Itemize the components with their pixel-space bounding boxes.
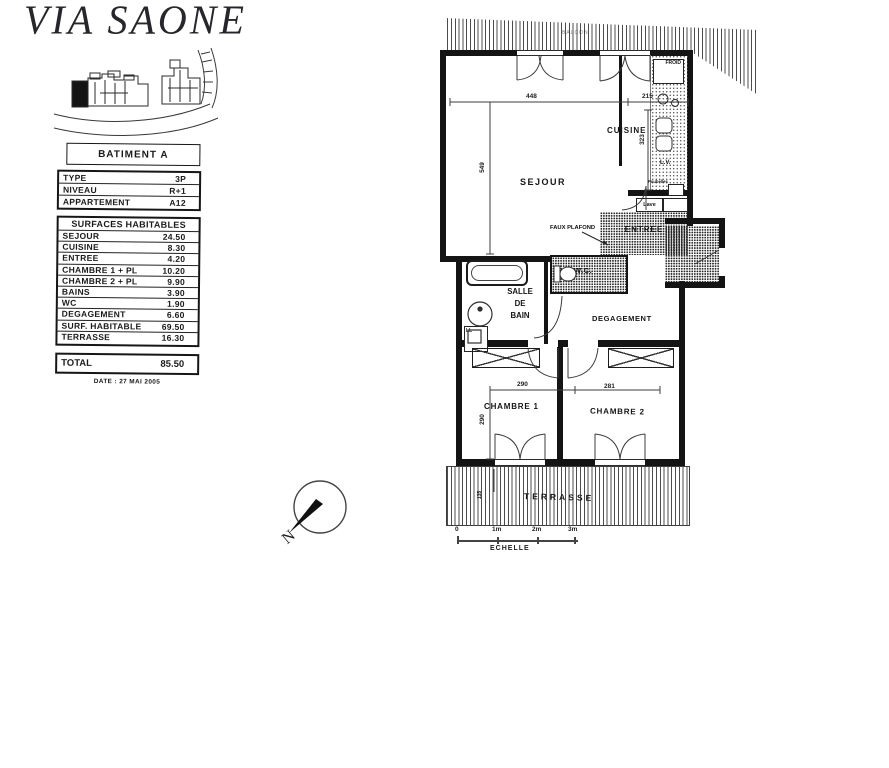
info-label: APPARTEMENT <box>59 197 130 208</box>
bath-fixtures <box>468 302 492 343</box>
door-swings <box>495 56 719 459</box>
north-compass: N <box>280 474 360 554</box>
info-value: A12 <box>169 198 199 208</box>
scale-tick-2m: 2m <box>532 526 541 533</box>
surface-label: CUISINE <box>58 242 99 252</box>
surface-value: 6.60 <box>167 310 198 320</box>
info-value: R+1 <box>169 186 199 196</box>
faux-plafond-arrow <box>582 232 608 245</box>
info-row: APPARTEMENT A12 <box>59 196 199 210</box>
scale-tick-1m: 1m <box>492 526 501 533</box>
total-box: TOTAL 85.50 <box>55 353 199 376</box>
surface-label: TERRASSE <box>57 332 110 343</box>
surface-label: SEJOUR <box>58 231 99 241</box>
surface-value: 24.50 <box>163 232 199 242</box>
surface-label: SURF. HABITABLE <box>58 320 142 331</box>
dimension-lines <box>450 98 688 492</box>
scale-label: ECHELLE <box>490 545 530 552</box>
surface-label: BAINS <box>58 287 90 297</box>
scale-bar <box>458 536 578 544</box>
project-title: VIA SAONE <box>24 0 264 44</box>
surfaces-table: SURFACES HABITABLES SEJOUR 24.50 CUISINE… <box>55 216 200 348</box>
floor-plan: BALCON ENTREE FAUX PLAFOND Lave FROID L.… <box>432 14 750 566</box>
apartment-info-table: TYPE 3P NIVEAU R+1 APPARTEMENT A12 <box>57 170 201 212</box>
north-label: N <box>280 527 299 548</box>
surface-label: CHAMBRE 1 + PL <box>58 264 137 275</box>
site-plan-sketch <box>50 48 230 143</box>
surface-label: CHAMBRE 2 + PL <box>58 275 137 286</box>
surface-row: TERRASSE 16.30 <box>57 331 197 344</box>
scanned-floorplan-page: { "header": { "title": "VIA SAONE" }, "b… <box>0 0 889 768</box>
surface-value: 9.90 <box>167 277 198 287</box>
compass-circle <box>294 481 346 533</box>
surface-value: 8.30 <box>168 243 199 253</box>
surface-label: ENTREE <box>58 253 98 263</box>
building-box: BATIMENT A <box>66 143 200 166</box>
plan-linework <box>432 14 750 566</box>
kitchen-fixtures <box>656 94 679 151</box>
site-buildings-right <box>162 60 200 104</box>
total-value: 85.50 <box>160 359 197 370</box>
info-label: NIVEAU <box>59 184 97 194</box>
surface-value: 10.20 <box>162 265 198 275</box>
surface-label: DEGAGEMENT <box>58 309 126 320</box>
total-label: TOTAL <box>57 358 92 369</box>
surface-value: 16.30 <box>162 333 198 343</box>
info-value: 3P <box>175 173 199 183</box>
scale-tick-3m: 3m <box>568 526 577 533</box>
site-buildings-left <box>72 71 148 107</box>
surface-value: 69.50 <box>162 321 198 331</box>
surface-value: 3.90 <box>167 288 198 298</box>
surface-label: WC <box>58 298 77 308</box>
surface-value: 1.90 <box>167 299 198 309</box>
date-stamp: DATE : 27 MAI 2005 <box>55 378 199 387</box>
info-label: TYPE <box>59 172 87 182</box>
surface-value: 4.20 <box>167 254 198 264</box>
wc-fixture <box>554 266 576 282</box>
scale-tick-0: 0 <box>455 526 459 533</box>
